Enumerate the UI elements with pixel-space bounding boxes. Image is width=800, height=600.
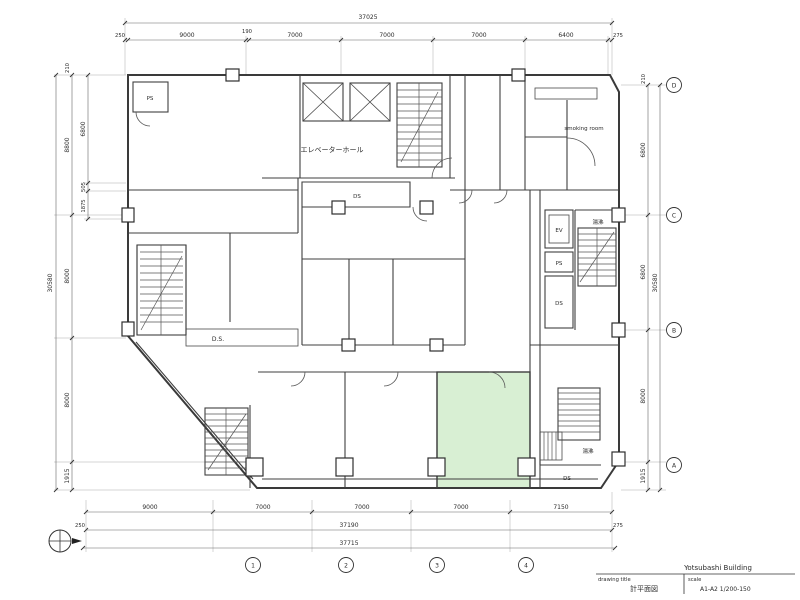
room-label-ps-top-left: PS (147, 96, 154, 102)
grid-bubbles-right: D C B A (667, 78, 682, 473)
dim-top-seg: 7000 (379, 32, 394, 39)
title-block-scale-label: scale (688, 577, 701, 583)
stairs (137, 83, 616, 475)
grid-bubbles-bottom: 1 2 3 4 (246, 558, 534, 573)
dim-right-seg: 1915 (640, 468, 647, 483)
dim-left-inner: 1875 (81, 199, 87, 212)
dim-left-inner: 210 (65, 63, 71, 73)
highlighted-room[interactable] (437, 372, 530, 488)
dim-bottom-seg: 7000 (255, 504, 270, 511)
dim-bottom-sub-total: 37190 (339, 522, 358, 529)
floor-plan-canvas: 37025 250 9000 190 7000 7000 7000 6400 2… (0, 0, 800, 600)
title-block: Yotsubashi Building drawing title 計平面図 s… (596, 564, 795, 594)
dim-right-seg: 6800 (640, 142, 647, 157)
grid-bubble-label: C (672, 213, 676, 220)
dim-right-seg: 8000 (640, 388, 647, 403)
grid-bubble-label: D (672, 83, 677, 90)
room-label-hot-water-lower: 湯沸 (582, 447, 594, 455)
dim-bottom-seg: 7150 (553, 504, 568, 511)
dim-bottom-seg: 7000 (453, 504, 468, 511)
dim-top-seg: 7000 (287, 32, 302, 39)
dim-left-outer: 8000 (64, 268, 71, 283)
title-block-title-label: drawing title (598, 577, 631, 583)
room-label-smoking-room: smoking room (564, 126, 603, 132)
title-block-scale-value: A1-A2 1/200-150 (700, 586, 751, 593)
grid-bubble-label: B (672, 328, 676, 335)
room-label-ds-stack: DS (555, 301, 563, 307)
room-label-ds-corner: DS (563, 476, 571, 482)
room-label-duct-space: D.S. (212, 336, 224, 343)
grid-bubble-label: 2 (344, 563, 348, 570)
dim-bottom: 9000 7000 7000 7000 7150 250 37190 275 3… (75, 504, 623, 573)
dim-top-seg: 250 (115, 33, 125, 39)
stair-left (137, 245, 186, 335)
dim-left-inner: 505 (81, 182, 87, 192)
dim-bottom-seg: 9000 (142, 504, 157, 511)
dim-top-seg: 6400 (558, 32, 573, 39)
title-block-title-value: 計平面図 (630, 584, 658, 593)
dim-bottom-sub-right: 275 (613, 523, 623, 529)
dim-right-total: 30580 (652, 273, 659, 292)
dim-left: 30580 210 8800 8000 8000 1915 6800 505 1… (47, 63, 90, 492)
elevator-shafts (303, 83, 390, 121)
dim-right-seg: 6800 (640, 264, 647, 279)
grid-bubble-label: 4 (524, 563, 528, 570)
dim-bottom-grand-total: 37715 (339, 540, 358, 547)
dim-top-seg: 9000 (179, 32, 194, 39)
dim-left-inner: 6800 (80, 121, 87, 136)
compass-icon (49, 530, 82, 552)
dim-top-seg: 7000 (471, 32, 486, 39)
room-label-ps-stack: PS (556, 261, 563, 267)
dim-left-outer: 8000 (64, 392, 71, 407)
dim-bottom-sub-left: 250 (75, 523, 85, 529)
dim-left-outer: 1915 (64, 468, 71, 483)
dim-left-outer: 8800 (64, 137, 71, 152)
door-arcs (136, 112, 595, 388)
floor-plan-sheet: 37025 250 9000 190 7000 7000 7000 6400 2… (0, 0, 800, 600)
dim-top-seg: 275 (613, 33, 623, 39)
dim-top: 37025 250 9000 190 7000 7000 7000 6400 2… (115, 14, 623, 42)
room-label-elevator-hall: エレベーターホール (301, 145, 364, 154)
dim-left-total: 30580 (47, 273, 54, 292)
dim-bottom-seg: 7000 (354, 504, 369, 511)
walls (128, 75, 619, 488)
dim-top-seg: 190 (242, 29, 252, 35)
room-label-ds-strip: DS (353, 194, 361, 200)
grid-bubble-label: 3 (435, 563, 439, 570)
room-labels: エレベーターホール smoking room 湯沸 湯沸 D.S. DS DS … (147, 96, 604, 482)
grid-bubble-label: 1 (251, 563, 255, 570)
title-block-building-name: Yotsubashi Building (683, 564, 752, 572)
room-label-hot-water-upper: 湯沸 (592, 218, 604, 226)
room-label-ev-stack: EV (555, 228, 562, 234)
dim-right: 210 6800 6800 8000 1915 30580 D C B A (640, 74, 682, 492)
dim-top-total: 37025 (358, 14, 377, 21)
dim-right-seg: 210 (641, 74, 647, 84)
